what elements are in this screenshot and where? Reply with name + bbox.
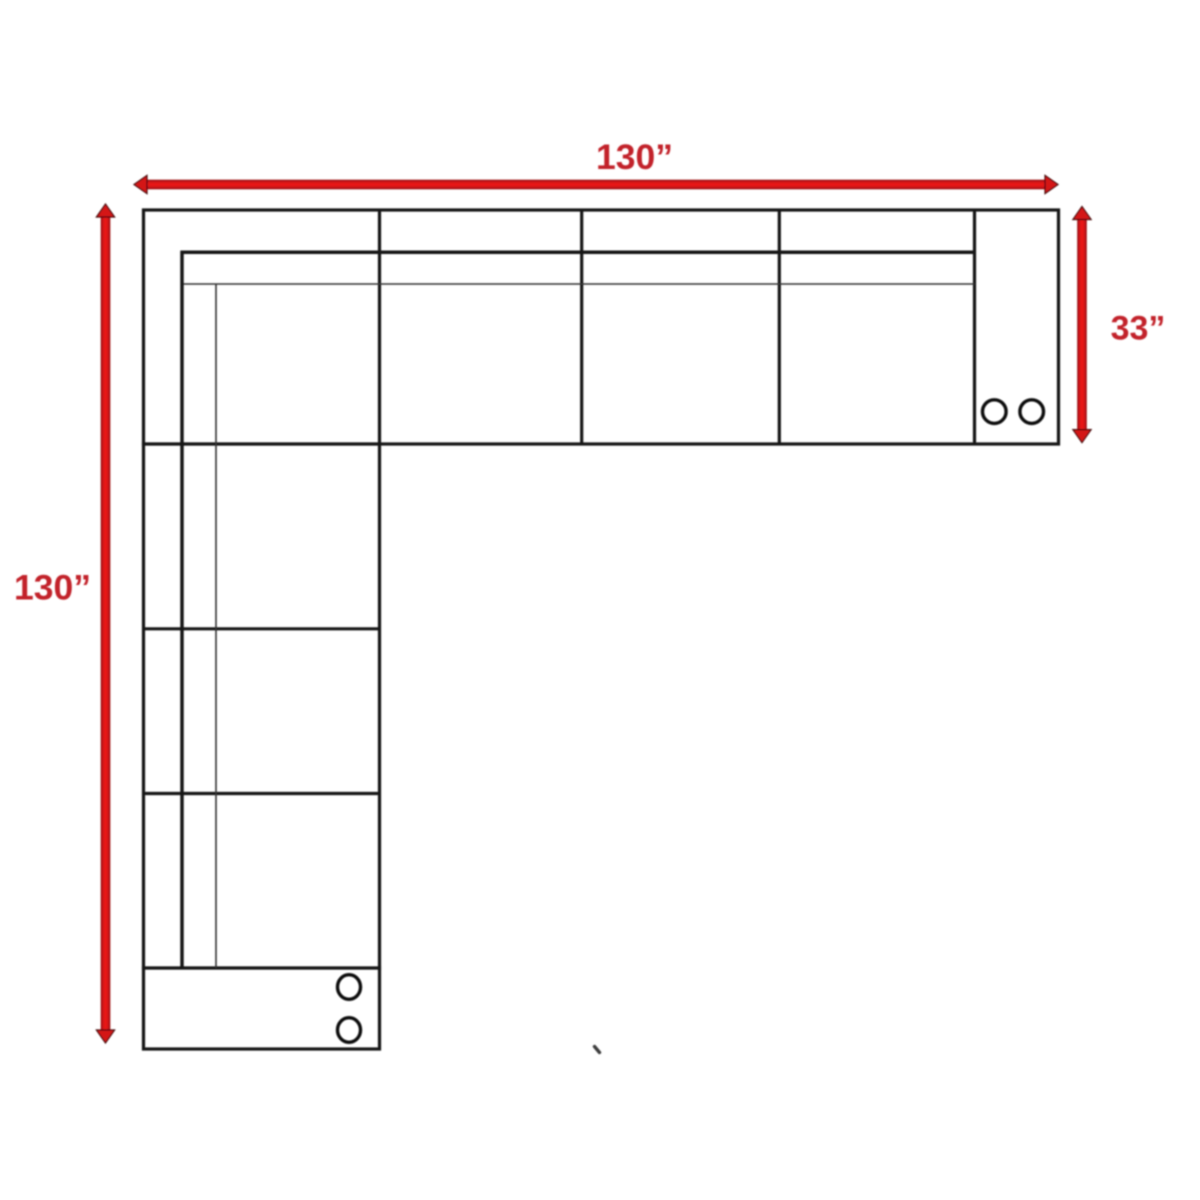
svg-text:130”: 130”: [596, 137, 673, 177]
svg-text:33”: 33”: [1111, 310, 1166, 348]
svg-text:130”: 130”: [14, 568, 91, 608]
